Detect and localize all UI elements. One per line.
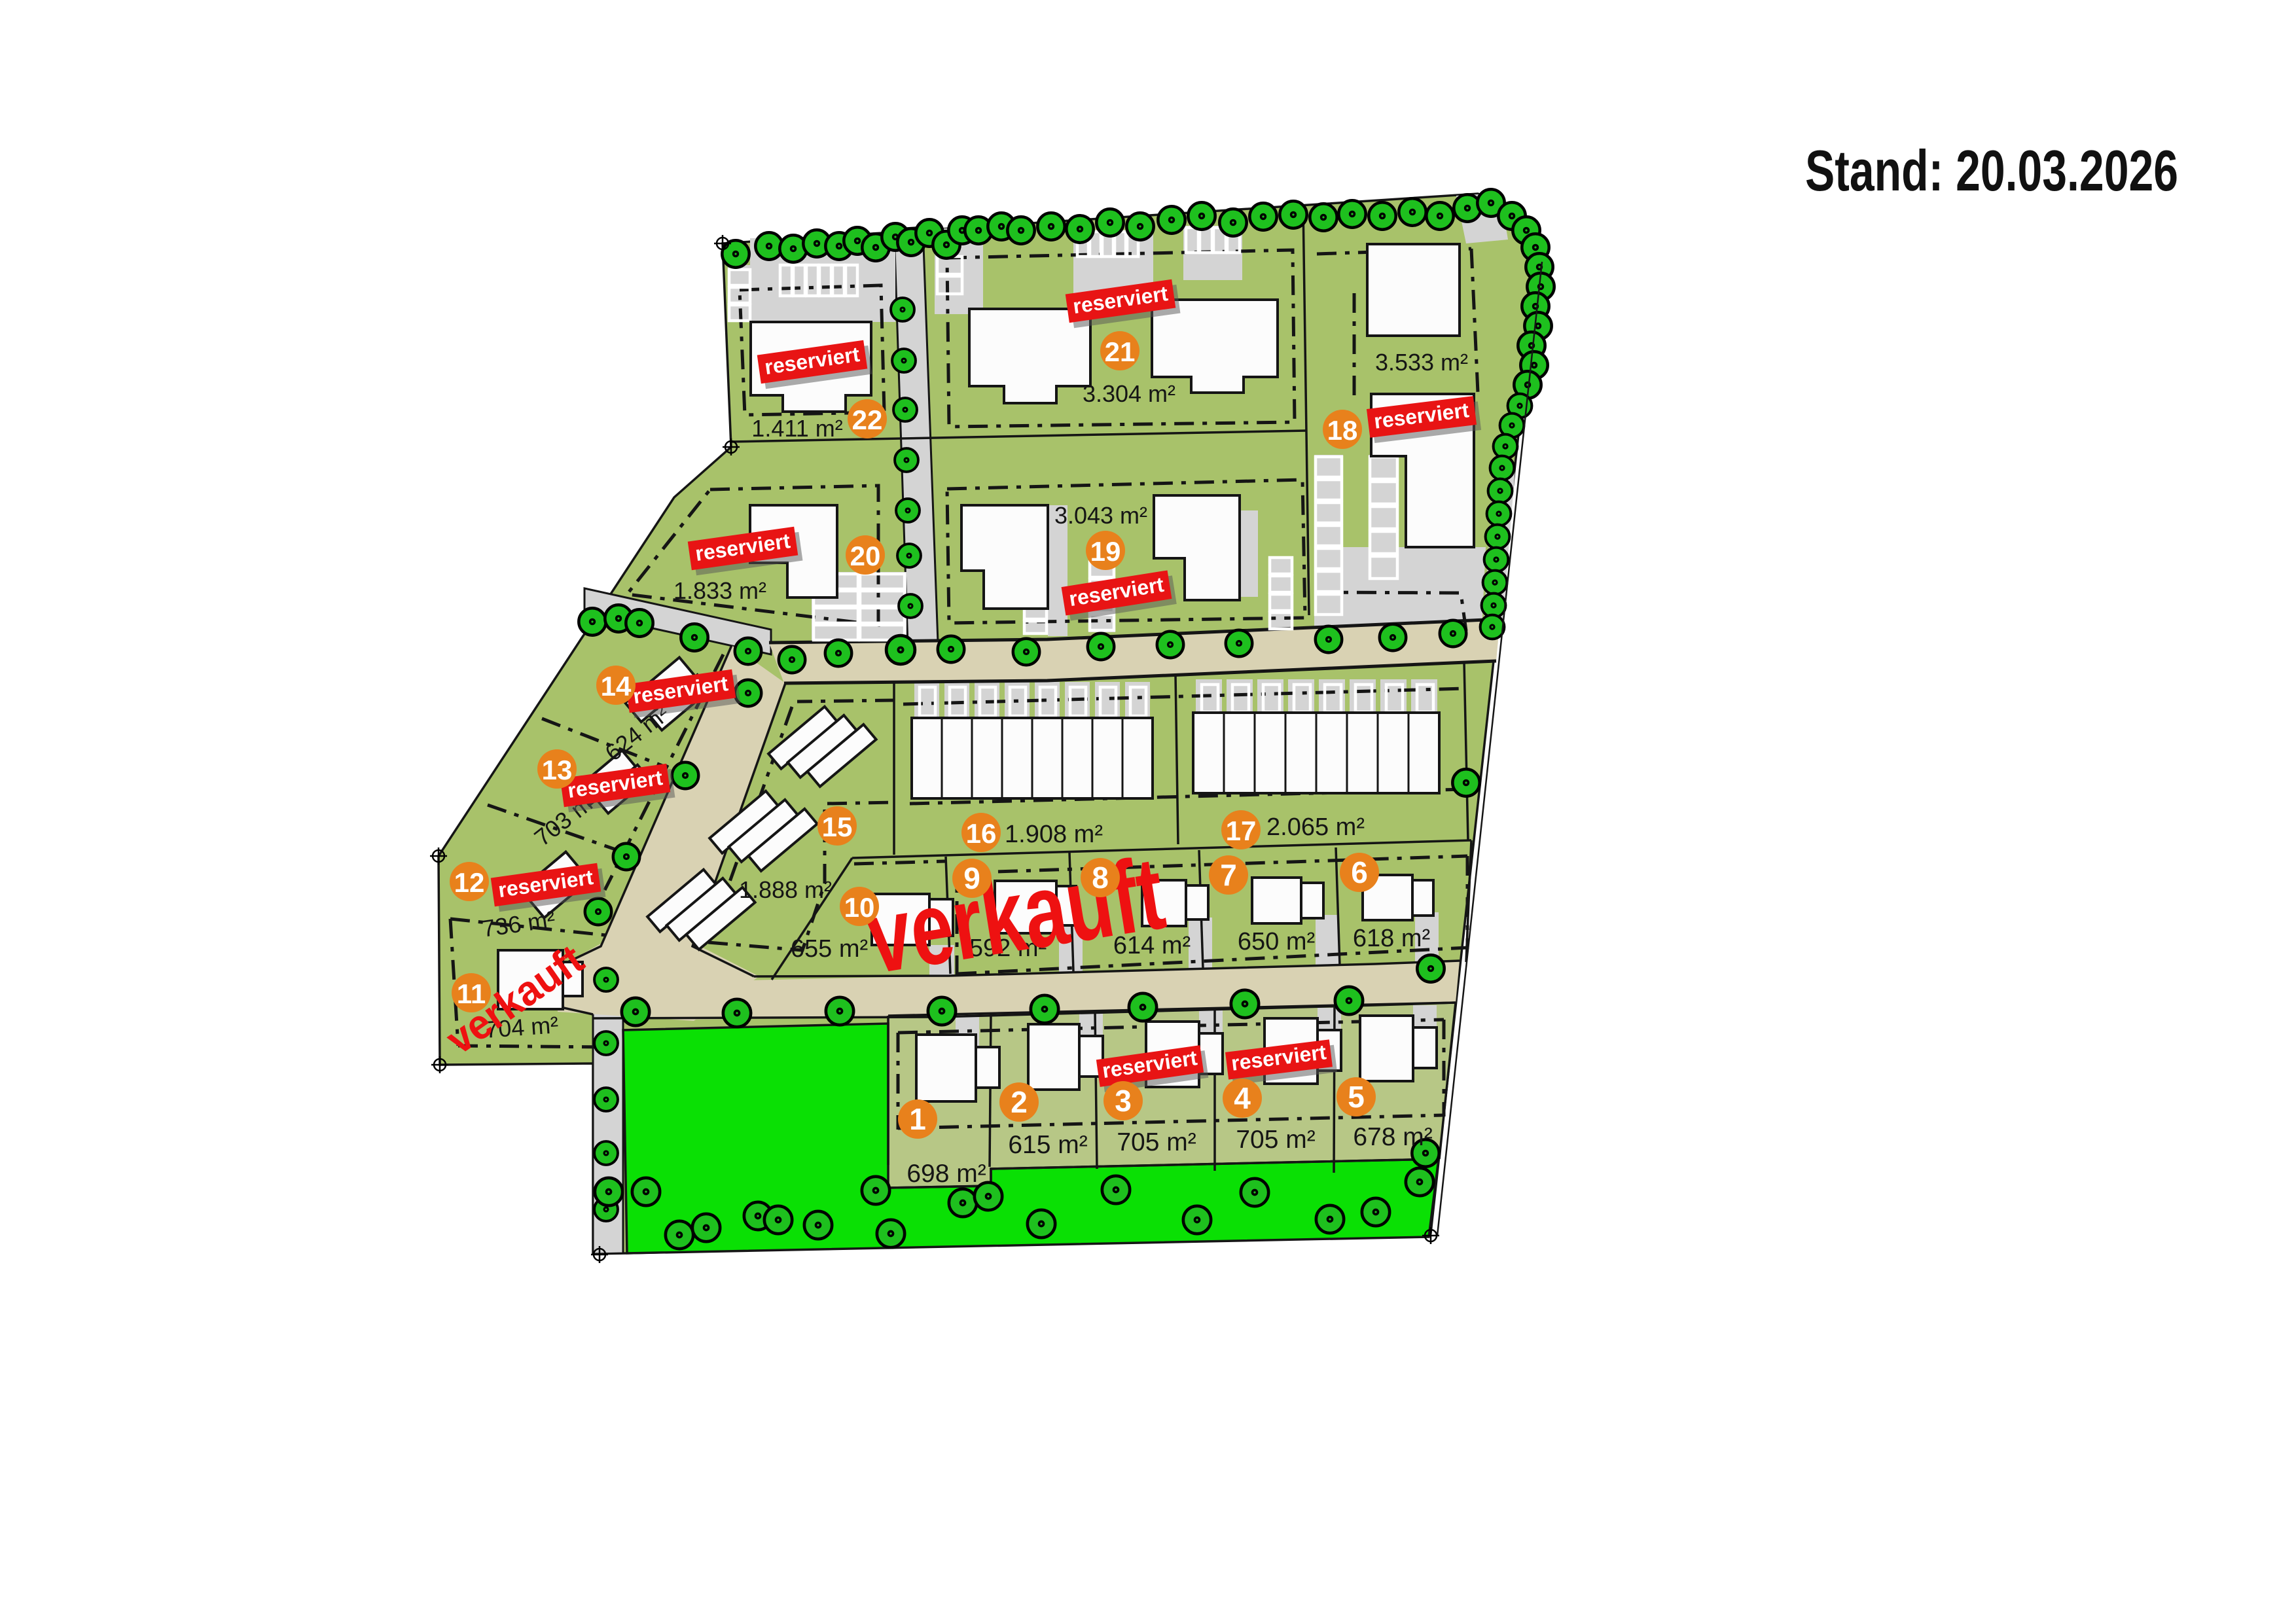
svg-text:4: 4 [1234, 1081, 1251, 1115]
svg-text:1.908 m²: 1.908 m² [1005, 821, 1103, 848]
svg-text:615 m²: 615 m² [1008, 1131, 1087, 1159]
svg-text:16: 16 [966, 818, 997, 849]
svg-text:12: 12 [454, 867, 485, 898]
svg-text:2.065 m²: 2.065 m² [1266, 813, 1365, 841]
svg-text:3.533 m²: 3.533 m² [1375, 349, 1468, 376]
svg-text:1.888 m²: 1.888 m² [739, 876, 832, 903]
svg-text:7: 7 [1220, 858, 1237, 892]
svg-text:22: 22 [852, 404, 883, 435]
svg-text:17: 17 [1226, 815, 1257, 846]
svg-text:13: 13 [542, 755, 573, 785]
svg-text:650 m²: 650 m² [1238, 928, 1315, 955]
svg-text:Stand: 20.03.2026: Stand: 20.03.2026 [1805, 138, 2178, 203]
svg-text:1.833 m²: 1.833 m² [673, 577, 766, 604]
svg-text:21: 21 [1105, 336, 1136, 367]
svg-text:705 m²: 705 m² [1117, 1128, 1196, 1156]
svg-text:678 m²: 678 m² [1353, 1123, 1432, 1151]
svg-text:6: 6 [1351, 855, 1368, 889]
svg-text:20: 20 [850, 541, 881, 571]
svg-text:14: 14 [601, 671, 632, 702]
svg-text:655 m²: 655 m² [791, 935, 868, 963]
svg-text:2: 2 [1011, 1085, 1028, 1119]
svg-text:1: 1 [909, 1102, 926, 1136]
svg-text:8: 8 [1092, 861, 1109, 895]
svg-text:9: 9 [963, 861, 980, 895]
svg-text:3.043 m²: 3.043 m² [1054, 502, 1147, 529]
svg-text:18: 18 [1327, 415, 1358, 446]
svg-text:5: 5 [1348, 1080, 1365, 1114]
svg-text:1.411 m²: 1.411 m² [751, 415, 842, 442]
svg-text:11: 11 [457, 978, 486, 1009]
svg-text:698 m²: 698 m² [906, 1160, 986, 1188]
svg-text:10: 10 [844, 892, 875, 923]
svg-text:705 m²: 705 m² [1236, 1126, 1315, 1154]
svg-text:3.304 m²: 3.304 m² [1083, 380, 1175, 407]
svg-text:15: 15 [822, 811, 853, 842]
svg-text:3: 3 [1115, 1084, 1132, 1118]
svg-text:618 m²: 618 m² [1353, 925, 1430, 952]
svg-text:19: 19 [1090, 536, 1121, 567]
